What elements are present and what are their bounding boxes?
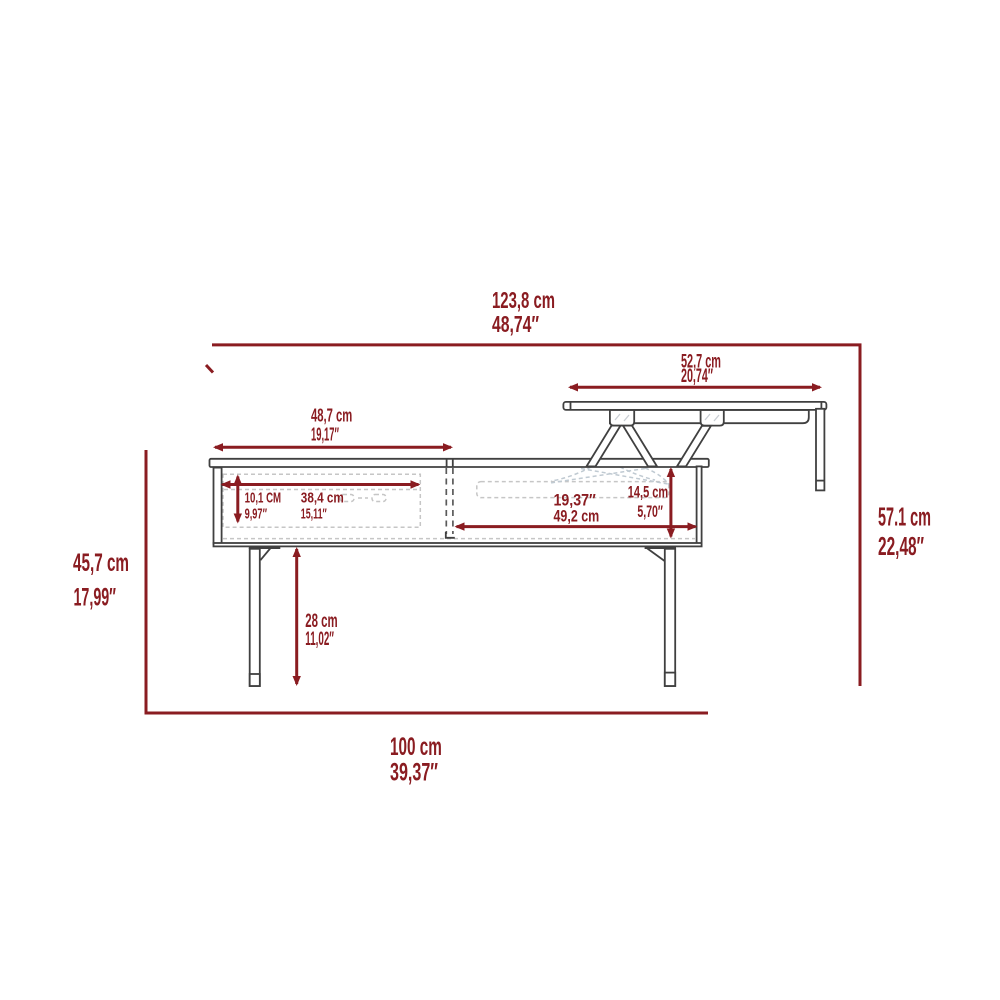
svg-text:48,74″: 48,74″ (492, 311, 539, 337)
svg-text:123,8 cm: 123,8 cm (492, 287, 555, 313)
svg-text:100 cm: 100 cm (390, 734, 442, 761)
svg-text:45,7 cm: 45,7 cm (73, 549, 129, 577)
svg-text:5,70″: 5,70″ (637, 503, 663, 521)
svg-text:14,5 cm: 14,5 cm (628, 484, 668, 502)
svg-text:9,97″: 9,97″ (245, 506, 267, 522)
svg-text:49,2 cm: 49,2 cm (554, 508, 600, 526)
svg-text:38,4 cm: 38,4 cm (301, 490, 344, 507)
svg-text:22,48″: 22,48″ (878, 531, 924, 561)
svg-text:39,37″: 39,37″ (390, 760, 438, 787)
svg-text:15,11″: 15,11″ (301, 505, 327, 522)
svg-text:17,99″: 17,99″ (74, 584, 117, 612)
svg-text:19,17″: 19,17″ (311, 425, 339, 445)
svg-text:20,74″: 20,74″ (681, 366, 713, 387)
svg-text:10,1 CM: 10,1 CM (245, 491, 282, 507)
svg-text:57.1 cm: 57.1 cm (878, 502, 931, 532)
svg-text:48,7 cm: 48,7 cm (311, 406, 352, 426)
svg-text:11,02″: 11,02″ (305, 628, 334, 650)
